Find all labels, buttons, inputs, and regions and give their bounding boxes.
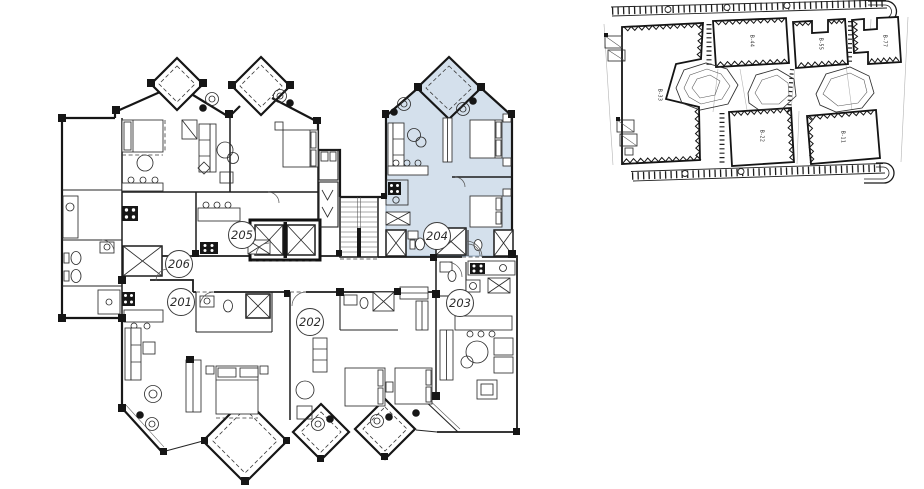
site-block-b44[interactable]: B-44 [713,18,789,67]
site-block-label-b55: B-55 [818,38,824,51]
plan-canvas: 201 202 203 204 205 206 [0,0,924,489]
staircase [340,197,378,257]
site-block-b33[interactable]: B-33 [622,23,703,164]
unit-label-204[interactable]: 204 [424,223,451,250]
unit-label-206[interactable]: 206 [166,251,193,278]
unit-number-204: 204 [426,229,448,243]
duct-shafts [319,150,338,227]
site-block-b55[interactable]: B-55 [793,19,848,68]
site-plan: B-33 B-44 B-55 B-77 B-22 [604,0,908,183]
site-block-b77[interactable]: B-77 [852,17,901,64]
site-block-label-b22: B-22 [759,130,765,143]
site-block-b11[interactable]: B-11 [807,110,880,164]
unit-label-202[interactable]: 202 [297,309,324,336]
unit-label-205[interactable]: 205 [229,222,256,249]
unit-label-201[interactable]: 201 [168,289,195,316]
floor-plan: 201 202 203 204 205 206 [58,57,520,485]
unit-number-202: 202 [299,315,321,329]
site-block-label-b77: B-77 [882,35,888,48]
site-courtyards [676,63,874,112]
unit-label-203[interactable]: 203 [447,290,474,317]
unit-number-201: 201 [170,295,192,309]
site-block-label-b11: B-11 [840,131,846,144]
site-road-bottom [631,163,894,183]
site-block-label-b44: B-44 [749,35,755,48]
site-block-label-b33: B-33 [657,89,663,102]
plan-page: 201 202 203 204 205 206 [0,0,924,489]
site-block-b22[interactable]: B-22 [729,108,794,166]
unit-number-205: 205 [231,228,253,242]
unit-number-203: 203 [449,296,471,310]
furniture-unit-206 [63,120,163,314]
unit-number-206: 206 [168,257,190,271]
furniture-unit-203 [440,261,515,399]
